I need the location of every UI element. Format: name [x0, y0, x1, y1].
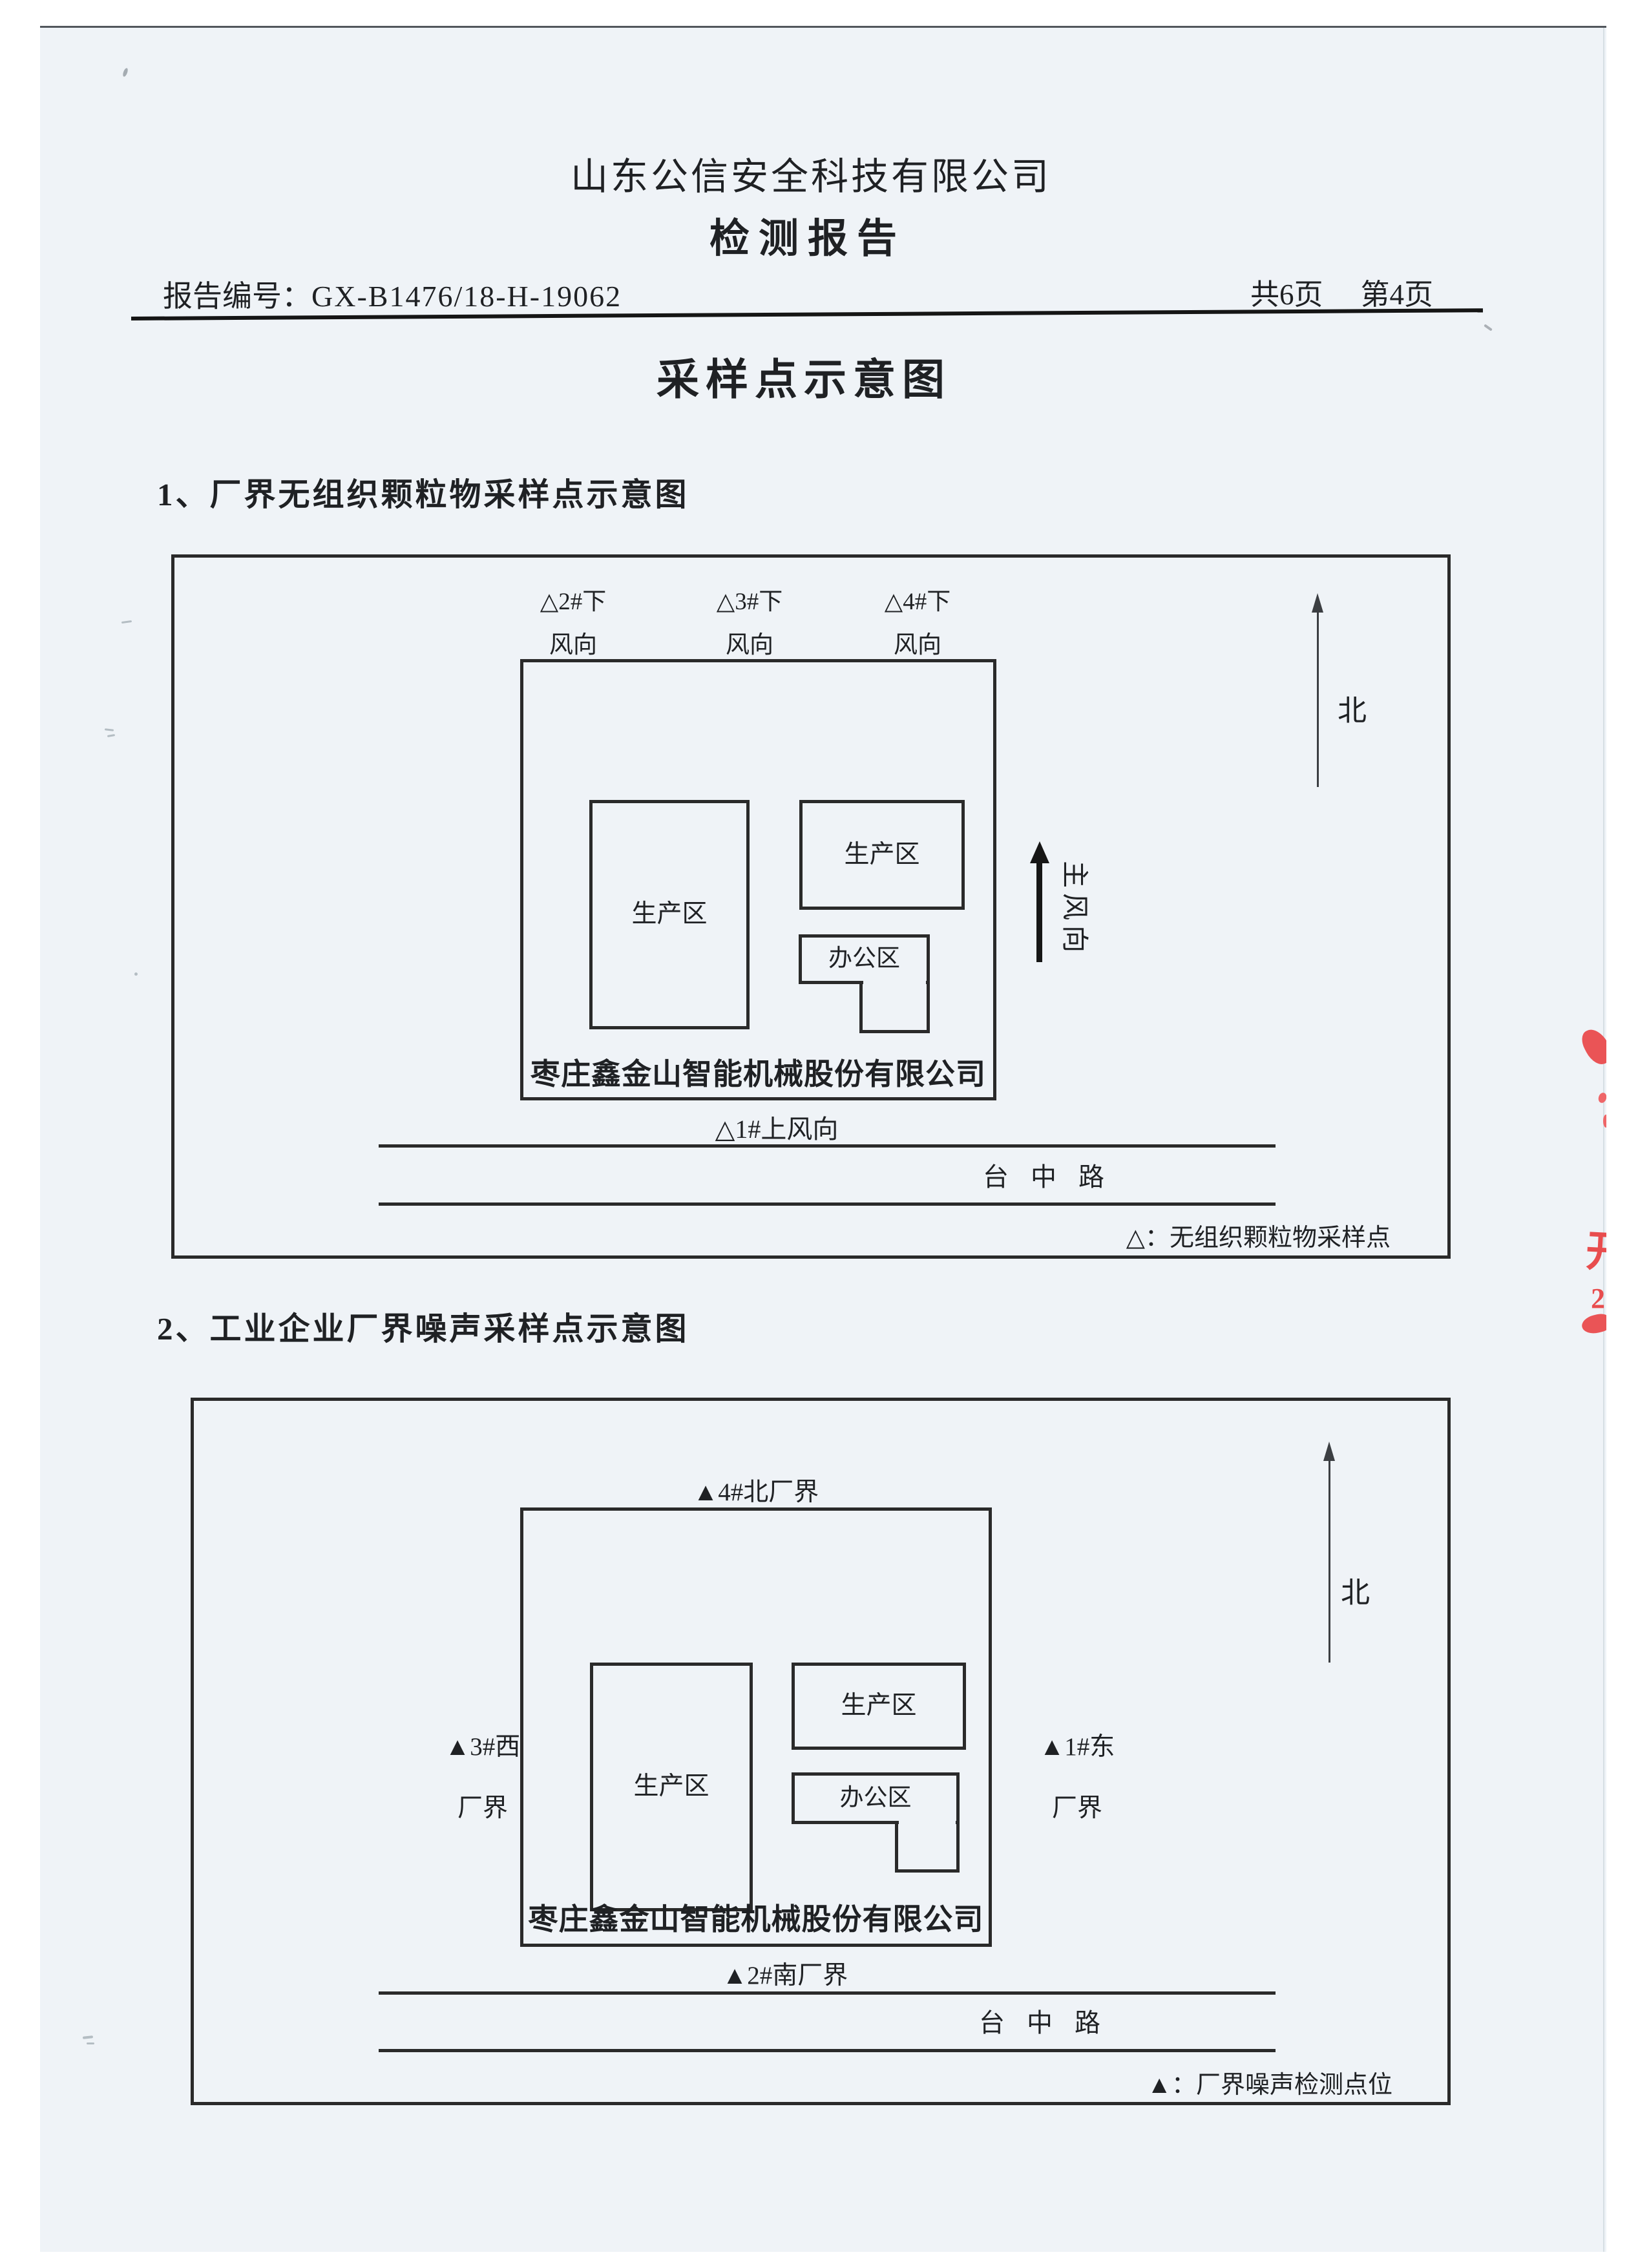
boundary-point-east-label: ▲1#东 厂界: [1006, 1716, 1148, 1839]
diagram2-frame: ▲4#北厂界 北 ▲3#西 厂界 ▲1#东 厂界 生产区 生产区: [191, 1398, 1451, 2105]
office-area-leg: [859, 981, 930, 1033]
north-label: 北: [1341, 1577, 1370, 1610]
stamp-fragment: [1577, 1025, 1606, 1069]
page-right-edge: [1603, 28, 1604, 2252]
production-area-left: 生产区: [590, 1663, 753, 1911]
north-label: 北: [1338, 695, 1367, 728]
paper-sheet: 山东公信安全科技有限公司 检测报告 报告编号：GX-B1476/18-H-190…: [40, 26, 1606, 2252]
downwind-point-3-label: △3#下 风向: [691, 580, 808, 667]
main-wind-label: 主风向: [1058, 857, 1089, 961]
stamp-fragment: [1580, 1312, 1606, 1336]
road-line-top: [379, 1144, 1276, 1148]
factory-outline: 生产区 生产区 办公区 枣庄鑫金山智能机械股份有限公司: [520, 659, 996, 1100]
report-no-line: 报告编号：GX-B1476/18-H-19062: [163, 280, 622, 314]
boundary-point-south-label: ▲2#南厂界: [682, 1962, 888, 1991]
factory-outline: 生产区 生产区 办公区 枣庄鑫金山智能机械股份有限公司: [520, 1507, 992, 1947]
boundary-point-north-label: ▲4#北厂界: [653, 1478, 859, 1507]
production-area-right: 生产区: [792, 1663, 966, 1750]
upwind-point-label: △1#上风向: [680, 1115, 874, 1144]
section2-heading: 2、工业企业厂界噪声采样点示意图: [157, 1311, 689, 1347]
scan-speck: [134, 972, 138, 976]
office-area-leg: [895, 1821, 960, 1873]
road-name: 台 中 路: [963, 1162, 1131, 1192]
scan-speck: [122, 67, 129, 77]
office-area: 办公区: [799, 934, 930, 984]
stamp-fragment: [1597, 1092, 1606, 1104]
office-area-joint: [899, 1821, 956, 1824]
road-line-bottom: [379, 1202, 1276, 1206]
report-no-label: 报告编号：: [163, 280, 311, 313]
scan-speck: [107, 734, 115, 737]
report-no-value: GX-B1476/18-H-19062: [311, 280, 622, 313]
diagram1-legend: △：无组织颗粒物采样点: [1126, 1224, 1391, 1253]
factory-name: 枣庄鑫金山智能机械股份有限公司: [523, 1903, 989, 1937]
page-current: 第4页: [1360, 278, 1433, 312]
scan-speck: [105, 728, 114, 731]
downwind-point-2-label: △2#下 风向: [515, 580, 631, 667]
stamp-fragment: [1603, 1115, 1606, 1128]
factory-name: 枣庄鑫金山智能机械股份有限公司: [523, 1058, 993, 1092]
scan-speck: [121, 620, 132, 624]
office-area-joint: [863, 981, 926, 984]
scanned-report-page: 山东公信安全科技有限公司 检测报告 报告编号：GX-B1476/18-H-190…: [0, 0, 1649, 2268]
north-arrow-shaft: [1317, 608, 1319, 787]
scan-speck: [83, 2035, 93, 2039]
scan-speck: [1484, 324, 1493, 331]
section1-heading: 1、厂界无组织颗粒物采样点示意图: [157, 477, 689, 513]
production-area-left: 生产区: [589, 800, 750, 1029]
company-name: 山东公信安全科技有限公司: [571, 156, 1051, 199]
scan-speck: [87, 2042, 94, 2044]
doc-type-title: 检测报告: [709, 216, 906, 262]
road-line-bottom: [379, 2049, 1276, 2052]
diagram2-legend: ▲：厂界噪声检测点位: [1147, 2072, 1392, 2100]
main-wind-arrow-shaft: [1036, 859, 1042, 962]
stamp-fragment-digit: 2: [1591, 1283, 1605, 1316]
office-area: 办公区: [792, 1772, 960, 1824]
stamp-fragment-char: 开: [1584, 1227, 1606, 1278]
road-name: 台 中 路: [960, 2008, 1128, 2038]
main-title: 采样点示意图: [656, 356, 951, 405]
road-line-top: [379, 1991, 1276, 1995]
production-area-right: 生产区: [799, 800, 965, 910]
downwind-point-4-label: △4#下 风向: [859, 580, 976, 667]
page-count-group: 共6页 第4页: [1250, 278, 1433, 312]
pages-total: 共6页: [1250, 278, 1323, 312]
north-arrow-shaft: [1329, 1456, 1330, 1663]
diagram1-frame: △2#下 风向 △3#下 风向 △4#下 风向 北 生产区 生产区: [171, 554, 1451, 1259]
